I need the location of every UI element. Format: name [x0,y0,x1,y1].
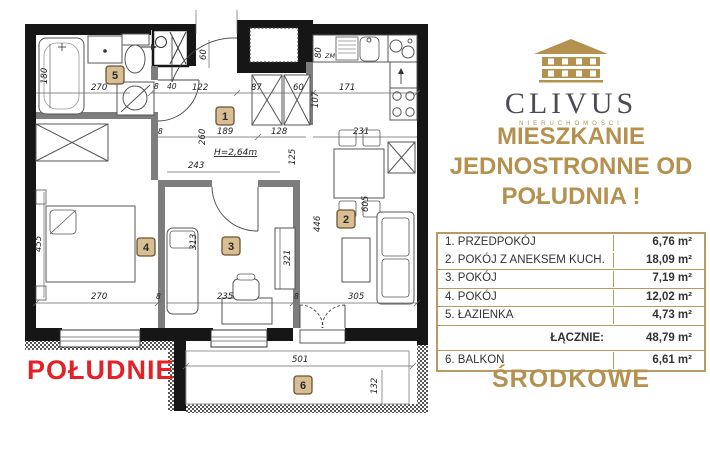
balcony-door-arc2 [322,305,345,328]
headline: MIESZKANIE JEDNOSTRONNE OD POŁUDNIA ! [432,122,710,212]
table-row: 4. POKÓJ 12,02 m² [438,289,704,308]
dim-label: 235 [217,292,233,302]
room-area: 12,02 m² [613,290,704,306]
dim-label: 8 [156,292,161,301]
dim-label: 8 [294,292,299,301]
room2-wardrobe [388,142,415,173]
height-note: H=2,64m [214,148,257,158]
location-label: ŚRODKOWE [432,365,710,394]
coffee-table [342,238,370,282]
dim-label: 132 [370,378,380,394]
bathroom-sink [88,36,122,63]
dim-label: 260 [198,129,208,145]
room-tag-2: 2 [343,214,349,226]
headline-line-1: MIESZKANIE [432,122,710,152]
table-row: 3. POKÓJ 7,19 m² [438,270,704,289]
dim-label: 189 [217,127,233,137]
dim-label: 243 [188,161,204,171]
dim-label: 125 [288,149,298,165]
dim-label: 80 [314,47,324,58]
room-tag-5: 5 [112,70,118,82]
dim-label: 231 [353,127,369,137]
brand-block: CLIVUS NIERUCHOMOŚCI [432,36,710,127]
dim-label: 107 [311,91,321,108]
dim-label: 321 [283,250,293,266]
double-bed [36,190,135,300]
table-row: 5. ŁAZIENKA 4,73 m² [438,307,704,326]
headline-line-3: POŁUDNIA ! [432,182,710,212]
room-tag-6: 6 [300,380,306,392]
dim-label: 40 [167,82,177,91]
room-label: 4. POKÓJ [438,289,613,307]
washing-machine [117,82,154,115]
dim-label: 60 [293,83,304,93]
room3-door-arc [212,187,258,231]
dining-set [334,130,384,217]
balcony-divider-wall [174,341,186,411]
table-row: 2. POKÓJ Z ANEKSEM KUCH. 18,09 m² [438,252,704,271]
sofa [377,212,414,304]
room-area: 6,76 m² [613,235,704,251]
dim-label: 446 [313,215,323,232]
dim-label: 270 [91,83,107,93]
room-label: 5. ŁAZIENKA [438,307,613,325]
dim-label: 270 [91,292,107,302]
dim-label: 305 [348,292,364,302]
dim-label: 8 [154,82,159,91]
room-label: 1. PRZEDPOKÓJ [438,234,613,252]
south-label: POŁUDNIE [27,355,175,386]
building-icon [525,36,617,84]
table-row: 1. PRZEDPOKÓJ 6,76 m² [438,234,704,252]
room-area: 18,09 m² [613,253,704,269]
info-panel: CLIVUS NIERUCHOMOŚCI MIESZKANIE JEDNOSTR… [432,0,710,451]
dim-label: 313 [189,234,199,250]
room-area: 7,19 m² [613,271,704,287]
dim-label: 180 [40,68,50,84]
room-label: 3. POKÓJ [438,270,613,288]
room-tag-4: 4 [143,242,150,254]
room-tag-3: 3 [228,241,234,253]
room-tag-1: 1 [222,111,228,123]
dim-label: 171 [339,83,355,93]
toilet [122,34,149,73]
room4-wardrobe [36,124,108,161]
table-total-row: ŁĄCZNIE: 48,79 m² [438,326,704,351]
dim-label: 501 [292,355,308,365]
dim-label: 455 [34,236,44,252]
brand-name: CLIVUS [432,89,710,119]
total-label: ŁĄCZNIE: [550,332,614,344]
area-table: 1. PRZEDPOKÓJ 6,76 m² 2. POKÓJ Z ANEKSEM… [436,232,706,372]
dim-label: 60 [199,49,209,60]
dim-label: 8 [158,127,163,136]
dim-label: 605 [361,196,371,212]
dishwasher-label: ZM [324,52,335,60]
shaft-opening [250,28,298,62]
total-value: 48,79 m² [614,332,704,344]
room-label: 2. POKÓJ Z ANEKSEM KUCH. [438,252,613,270]
dim-label: 87 [251,83,262,93]
kitchen-counter [313,35,417,88]
flyer-page: 270 8 40 122 87 60 171 189 128 231 8 243… [0,0,710,451]
room-area: 4,73 m² [613,308,704,324]
headline-line-2: JEDNOSTRONNE OD [432,152,710,182]
dim-label: 122 [192,83,208,93]
balcony-door-arc [300,305,323,328]
dim-label: 128 [271,127,288,137]
